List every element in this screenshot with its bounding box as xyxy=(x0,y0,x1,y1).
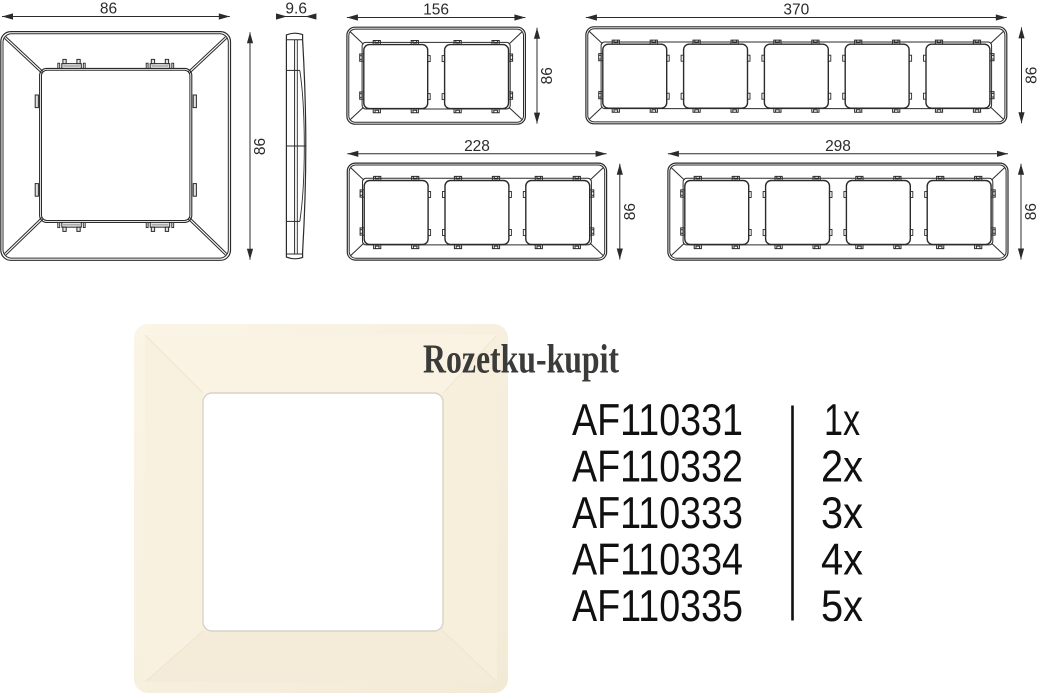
svg-text:9.6: 9.6 xyxy=(285,1,307,18)
svg-text:2x: 2x xyxy=(821,442,863,491)
svg-text:156: 156 xyxy=(423,2,449,19)
svg-text:AF110335: AF110335 xyxy=(572,582,743,631)
svg-text:Rozetku-kupit: Rozetku-kupit xyxy=(423,336,619,382)
svg-text:86: 86 xyxy=(622,203,639,220)
svg-text:AF110334: AF110334 xyxy=(572,536,743,585)
svg-text:370: 370 xyxy=(783,2,809,19)
svg-text:1x: 1x xyxy=(824,396,860,445)
svg-text:298: 298 xyxy=(825,138,851,155)
svg-text:3x: 3x xyxy=(821,489,863,538)
svg-text:4x: 4x xyxy=(821,536,863,585)
svg-text:86: 86 xyxy=(1024,67,1041,84)
svg-text:86: 86 xyxy=(252,138,269,155)
svg-text:AF110333: AF110333 xyxy=(572,489,743,538)
svg-text:228: 228 xyxy=(464,138,490,155)
svg-text:86: 86 xyxy=(1023,203,1040,220)
svg-text:86: 86 xyxy=(100,1,117,18)
svg-text:86: 86 xyxy=(539,67,556,84)
svg-text:AF110332: AF110332 xyxy=(572,442,743,491)
svg-text:AF110331: AF110331 xyxy=(572,396,743,445)
svg-text:5x: 5x xyxy=(821,582,863,631)
